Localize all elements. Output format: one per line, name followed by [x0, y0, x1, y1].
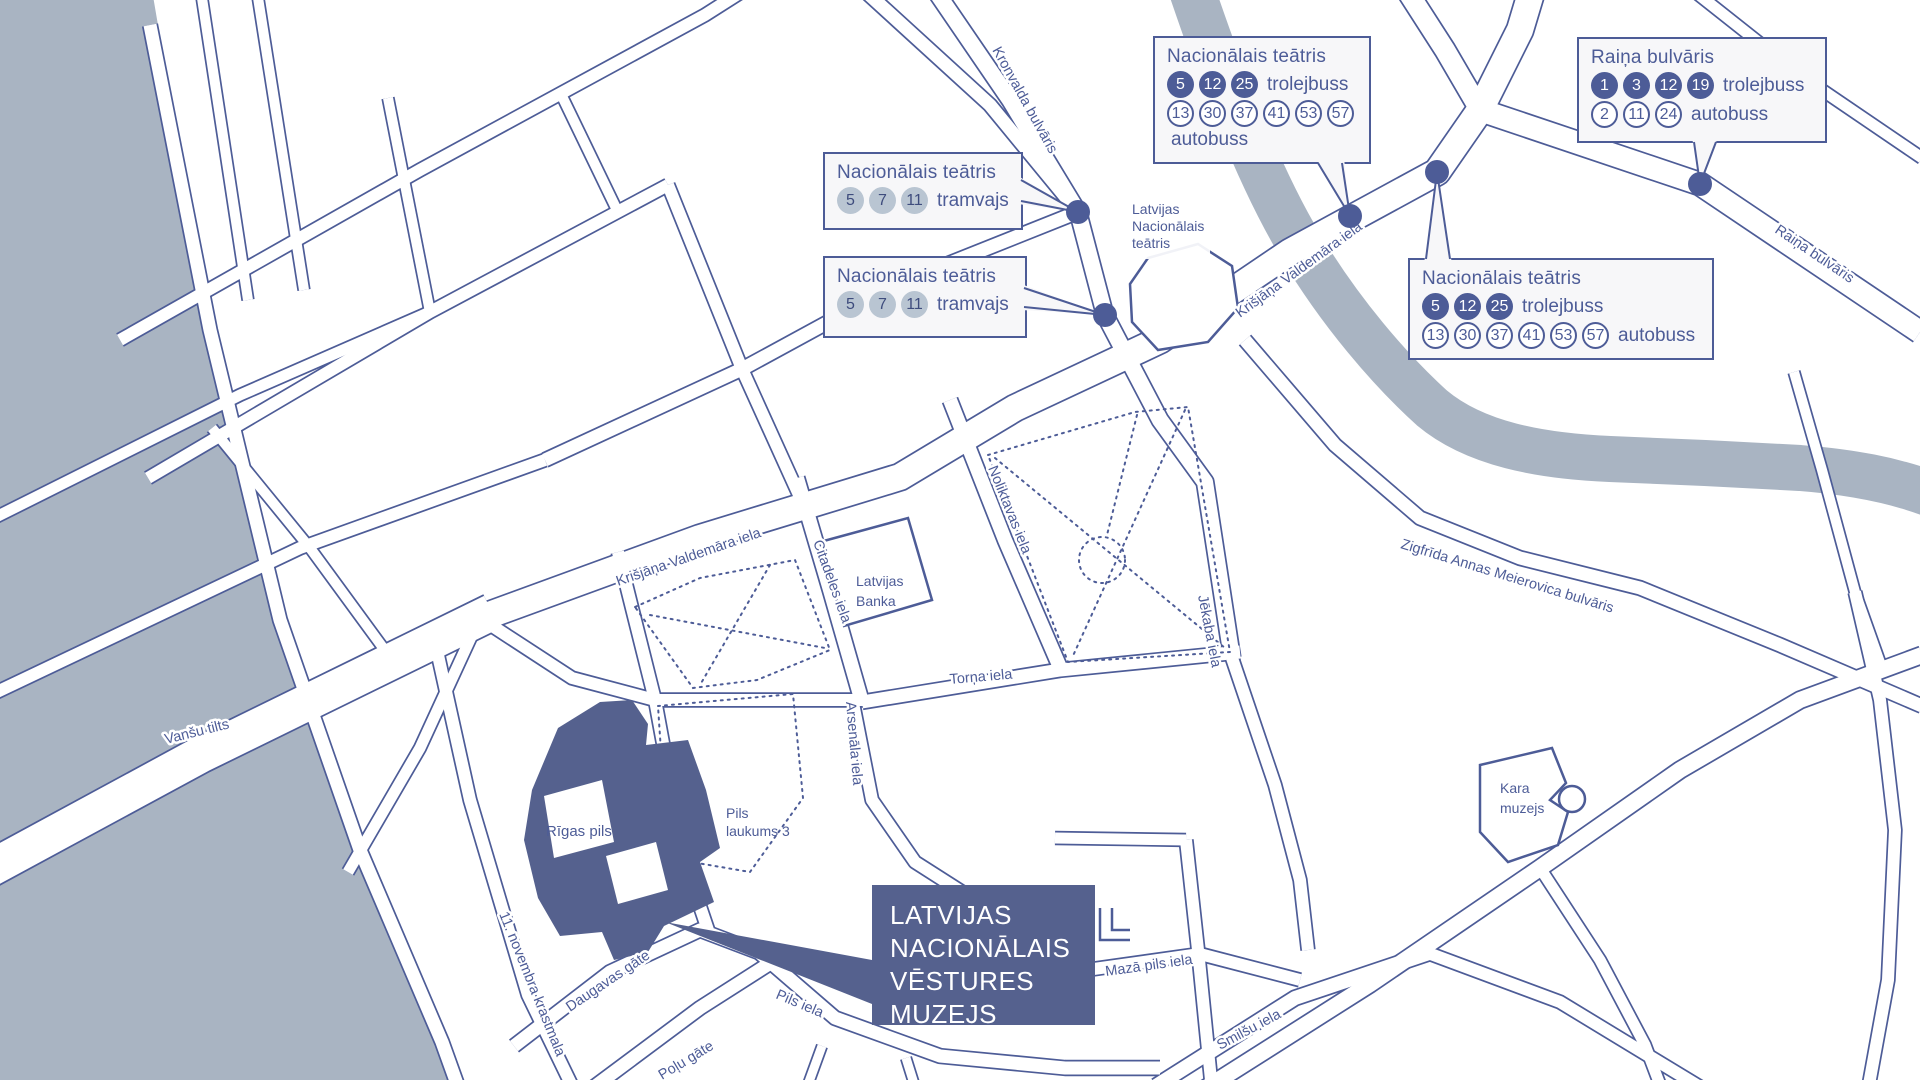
war-museum-label-line2: muzejs	[1500, 800, 1544, 816]
theatre-label-line1: Latvijas	[1132, 201, 1179, 217]
riga-transit-map: Kronvalda bulvāris Krišjāņa Valdemāra ie…	[0, 0, 1920, 1080]
route-badge-19: 19	[1687, 72, 1714, 99]
route-rows: 51225trolejbuss133037415357autobuss	[1167, 71, 1358, 151]
park-path	[1107, 415, 1137, 535]
transit-mode-label: trolejbuss	[1723, 75, 1804, 97]
route-badge-25: 25	[1486, 293, 1513, 320]
route-badge-53: 53	[1550, 322, 1577, 349]
street-label-polu: Poļu gāte	[656, 1038, 717, 1080]
route-badge-7: 7	[869, 291, 896, 318]
street-label-daugavas: Daugavas gāte	[563, 948, 653, 1016]
route-row: 5711tramvajs	[837, 291, 1014, 318]
route-badge-5: 5	[1167, 71, 1194, 98]
route-rows: 131219trolejbuss21124autobuss	[1591, 72, 1814, 128]
route-badge-11: 11	[1623, 101, 1650, 128]
museum-pointer	[665, 922, 872, 1004]
theatre-label-line3: teātris	[1132, 235, 1170, 251]
route-badge-1: 1	[1591, 72, 1618, 99]
route-badge-12: 12	[1454, 293, 1481, 320]
transit-mode-label: tramvajs	[937, 190, 1009, 212]
route-badge-41: 41	[1263, 100, 1290, 127]
route-badge-13: 13	[1422, 322, 1449, 349]
theatre-label-line2: Nacionālais	[1132, 218, 1204, 234]
route-badge-24: 24	[1655, 101, 1682, 128]
war-museum-label-line1: Kara	[1500, 780, 1530, 796]
stop-name: Nacionālais teātris	[1422, 267, 1701, 290]
stop-name: Nacionālais teātris	[837, 265, 1014, 288]
national-theatre-building	[1130, 244, 1238, 350]
route-badge-13: 13	[1167, 100, 1194, 127]
route-badge-5: 5	[837, 291, 864, 318]
park-path	[700, 565, 770, 685]
museum-name-line4: MUZEJS	[890, 998, 1095, 1031]
building-detail	[1100, 908, 1130, 940]
bank-label-line1: Latvijas	[856, 573, 903, 589]
route-row: 133037415357	[1167, 100, 1358, 127]
route-badge-53: 53	[1295, 100, 1322, 127]
route-badge-57: 57	[1327, 100, 1354, 127]
stop-name: Nacionālais teātris	[1167, 45, 1358, 68]
callout-tram-stop-2: Nacionālais teātris 5711tramvajs	[823, 256, 1027, 338]
route-badge-5: 5	[837, 187, 864, 214]
park-square-west	[635, 560, 830, 688]
park-path	[995, 458, 1225, 648]
museum-name-line1: LATVIJAS	[890, 899, 1095, 932]
stop-name: Nacionālais teātris	[837, 161, 1010, 184]
route-badge-30: 30	[1199, 100, 1226, 127]
route-badge-41: 41	[1518, 322, 1545, 349]
route-badge-30: 30	[1454, 322, 1481, 349]
callout-theatre-stop-right: Nacionālais teātris 51225trolejbuss13303…	[1408, 258, 1714, 360]
bank-label-line2: Banka	[856, 593, 896, 609]
route-badge-37: 37	[1231, 100, 1258, 127]
callout-raina-stop: Raiņa bulvāris 131219trolejbuss21124auto…	[1577, 37, 1827, 143]
route-badge-57: 57	[1582, 322, 1609, 349]
route-badge-7: 7	[869, 187, 896, 214]
route-badge-25: 25	[1231, 71, 1258, 98]
route-badge-12: 12	[1199, 71, 1226, 98]
pils-laukums-label-line1: Pils	[726, 805, 749, 821]
museum-name-box: LATVIJAS NACIONĀLAIS VĒSTURES MUZEJS	[872, 885, 1095, 1025]
route-row: 51225trolejbuss	[1167, 71, 1358, 98]
museum-name-line3: VĒSTURES	[890, 965, 1095, 998]
callout-tram-stop-1: Nacionālais teātris 5711tramvajs	[823, 152, 1023, 230]
route-badge-11: 11	[901, 291, 928, 318]
route-row: autobuss	[1167, 129, 1358, 151]
pils-laukums-label-line2: laukums 3	[726, 823, 790, 839]
callout-theatre-stop-top: Nacionālais teātris 51225trolejbuss13303…	[1153, 36, 1371, 164]
route-rows: 5711tramvajs	[837, 187, 1010, 214]
route-row: 131219trolejbuss	[1591, 72, 1814, 99]
route-rows: 5711tramvajs	[837, 291, 1014, 318]
route-badge-3: 3	[1623, 72, 1650, 99]
route-badge-2: 2	[1591, 101, 1618, 128]
route-badge-11: 11	[901, 187, 928, 214]
route-row: 5711tramvajs	[837, 187, 1010, 214]
route-badge-5: 5	[1422, 293, 1449, 320]
transit-mode-label: trolejbuss	[1267, 74, 1348, 96]
place-labels: Latvijas Nacionālais teātris Latvijas Ba…	[546, 201, 1544, 840]
park-fountain	[1079, 537, 1125, 583]
route-row: 51225trolejbuss	[1422, 293, 1701, 320]
transit-mode-label: tramvajs	[937, 294, 1009, 316]
transit-mode-label: autobuss	[1691, 104, 1768, 126]
route-rows: 51225trolejbuss133037415357autobuss	[1422, 293, 1701, 349]
transit-mode-label: trolejbuss	[1522, 296, 1603, 318]
route-row: 133037415357autobuss	[1422, 322, 1701, 349]
museum-name-line2: NACIONĀLAIS	[890, 932, 1095, 965]
castle-label: Rīgas pils	[546, 823, 612, 840]
transit-mode-label: autobuss	[1618, 325, 1695, 347]
route-badge-37: 37	[1486, 322, 1513, 349]
transit-mode-label: autobuss	[1171, 129, 1248, 151]
route-row: 21124autobuss	[1591, 101, 1814, 128]
stop-name: Raiņa bulvāris	[1591, 46, 1814, 69]
route-badge-12: 12	[1655, 72, 1682, 99]
